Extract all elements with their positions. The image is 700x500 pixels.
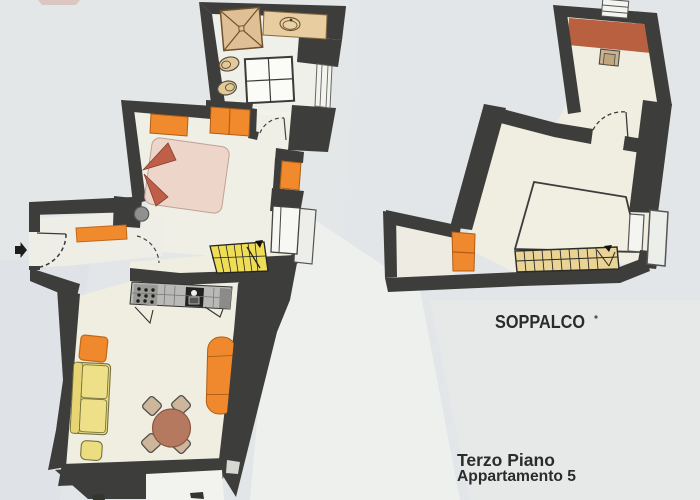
svg-text:Terzo Piano: Terzo Piano xyxy=(457,450,555,470)
svg-text:SOPPALCO: SOPPALCO xyxy=(495,312,585,332)
svg-text:Appartamento 5: Appartamento 5 xyxy=(457,468,576,485)
